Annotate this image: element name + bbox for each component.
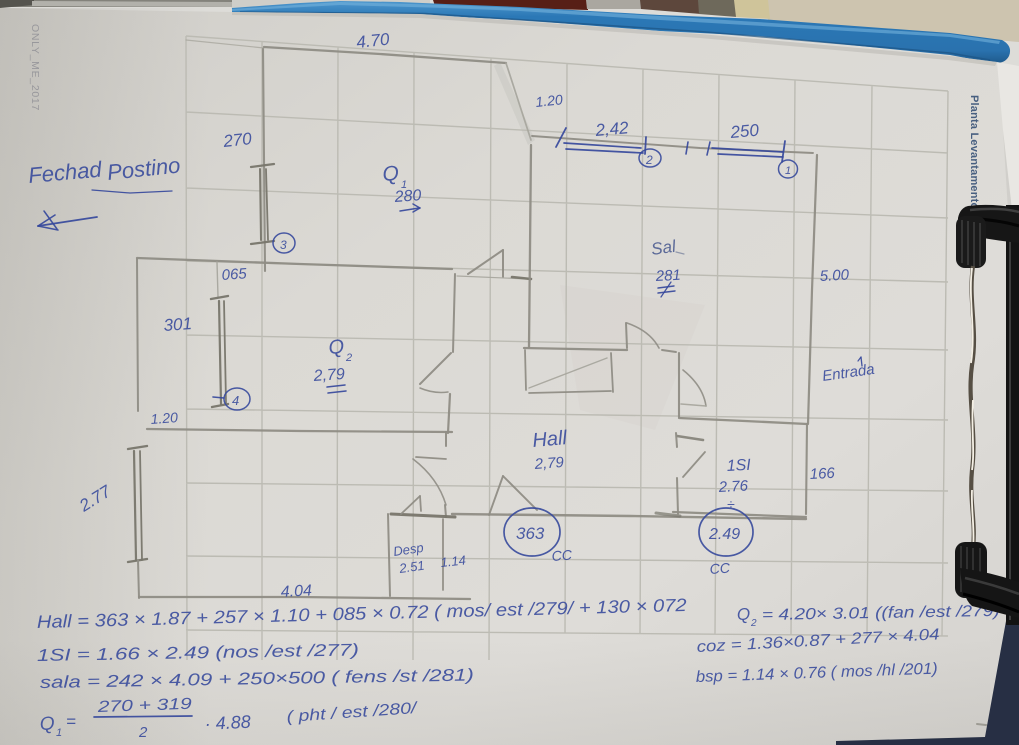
svg-text:Q: Q	[737, 605, 751, 624]
svg-text:2.76: 2.76	[717, 477, 749, 496]
svg-text:Q: Q	[328, 336, 345, 359]
svg-text:3: 3	[280, 238, 287, 252]
svg-text:301: 301	[163, 314, 193, 335]
svg-text:CC: CC	[709, 560, 731, 577]
svg-text:Q: Q	[382, 162, 400, 186]
svg-text:166: 166	[809, 465, 836, 483]
svg-text:2,79: 2,79	[312, 366, 345, 385]
svg-text:2: 2	[345, 352, 352, 364]
svg-text:065: 065	[221, 265, 248, 284]
svg-text:4.70: 4.70	[355, 30, 390, 52]
svg-text:2: 2	[750, 618, 757, 629]
svg-text:2.49: 2.49	[708, 526, 740, 543]
svg-text:Q: Q	[39, 713, 55, 735]
svg-text:1.14: 1.14	[440, 552, 467, 570]
svg-text:280: 280	[393, 187, 422, 206]
svg-text:1: 1	[785, 165, 791, 177]
svg-text:363: 363	[516, 524, 545, 543]
svg-text:=: =	[66, 712, 76, 731]
svg-text:2,42: 2,42	[594, 118, 630, 140]
svg-text:4.04: 4.04	[280, 582, 312, 601]
svg-text:Sal: Sal	[650, 237, 678, 259]
svg-text:1SI: 1SI	[726, 457, 751, 475]
svg-text:ONLY_ME_2017: ONLY_ME_2017	[29, 24, 41, 111]
svg-text:270: 270	[221, 129, 253, 151]
svg-text:1: 1	[56, 727, 62, 739]
svg-text:1.20: 1.20	[535, 91, 564, 110]
svg-text:1.20: 1.20	[150, 409, 179, 427]
svg-text:2: 2	[645, 153, 653, 167]
svg-text:270 + 319: 270 + 319	[96, 696, 192, 716]
svg-text:2: 2	[138, 724, 148, 741]
svg-text:Hall: Hall	[532, 427, 569, 452]
svg-text:250: 250	[729, 121, 760, 143]
svg-text:2,79: 2,79	[533, 454, 565, 473]
svg-text:5.00: 5.00	[819, 266, 850, 285]
svg-text:CC: CC	[551, 547, 573, 564]
svg-text:· 4.88: · 4.88	[204, 712, 251, 734]
svg-text:4: 4	[232, 393, 239, 408]
svg-text:281: 281	[654, 267, 681, 285]
svg-text:Planta Levantamento: Planta Levantamento	[968, 95, 980, 210]
